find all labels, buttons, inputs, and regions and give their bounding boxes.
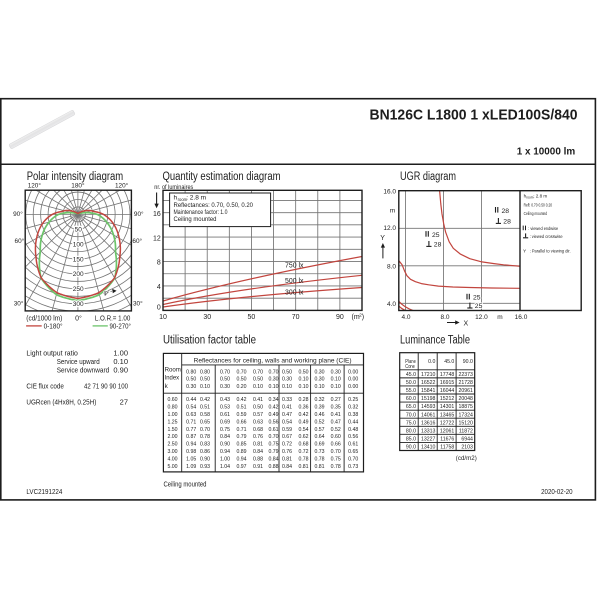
svg-text:Reflectances for ceiling, wall: Reflectances for ceiling, walls and work… [194,357,352,364]
svg-text:70: 70 [292,314,300,321]
svg-text:0.63: 0.63 [253,419,263,425]
svg-text:0.70: 0.70 [331,449,341,455]
svg-text:90.0: 90.0 [463,359,473,365]
svg-text:0.66: 0.66 [236,419,246,425]
svg-text:0.48: 0.48 [348,427,358,433]
svg-text:0.72: 0.72 [298,449,308,455]
svg-text:0.63: 0.63 [186,412,196,418]
svg-text:0.73: 0.73 [314,449,324,455]
svg-text:0.66: 0.66 [331,442,341,448]
svg-text:0°: 0° [75,314,82,322]
svg-text:Room: Room [165,367,181,374]
svg-text:L.O.R.= 1.00: L.O.R.= 1.00 [95,315,131,322]
svg-text:15212: 15212 [440,396,455,402]
svg-text:300 lx: 300 lx [285,289,304,296]
svg-text:2.00: 2.00 [167,434,177,440]
svg-text:0.10: 0.10 [314,384,324,390]
svg-text:Index: Index [165,375,180,382]
svg-text:0.79: 0.79 [236,434,246,440]
svg-text:16044: 16044 [440,388,455,394]
svg-text:0.44: 0.44 [348,419,358,425]
svg-text:0.54: 0.54 [298,427,308,433]
svg-text:25: 25 [473,295,481,302]
svg-text:11676: 11676 [440,436,454,442]
svg-text:0.91: 0.91 [253,464,263,470]
svg-text:0.30: 0.30 [282,377,292,383]
svg-text:11872: 11872 [459,428,473,434]
svg-text:0.20: 0.20 [236,384,246,390]
svg-text:17210: 17210 [421,372,436,378]
svg-text:120°: 120° [115,182,129,190]
svg-text:12722: 12722 [440,420,455,426]
svg-text:0.42: 0.42 [268,405,278,411]
svg-text:0.69: 0.69 [220,419,230,425]
svg-text:0.54: 0.54 [186,405,196,411]
svg-text:15198: 15198 [421,396,436,402]
svg-text:0.84: 0.84 [220,434,230,440]
svg-text:1.00: 1.00 [167,412,177,418]
svg-text:0.35: 0.35 [331,405,341,411]
svg-text:0.41: 0.41 [253,397,263,403]
svg-text:0.87: 0.87 [186,434,196,440]
svg-text:CIE flux code: CIE flux code [26,382,64,391]
svg-text:50.0: 50.0 [406,380,416,386]
svg-text:0.60: 0.60 [167,397,177,403]
svg-text:0.47: 0.47 [331,419,341,425]
svg-text:18875: 18875 [458,404,473,410]
svg-text:UGRcen (4Hx8H, 0.25H): UGRcen (4Hx8H, 0.25H) [26,398,96,407]
svg-text:1 x 10000 lm: 1 x 10000 lm [517,146,576,158]
svg-text:0.71: 0.71 [236,427,246,433]
svg-text:Ceiling mounted: Ceiling mounted [174,216,217,223]
svg-text:3.00: 3.00 [167,449,177,455]
svg-text:0.84: 0.84 [268,456,278,462]
svg-text:0.42: 0.42 [236,397,246,403]
svg-text:0: 0 [157,304,161,311]
svg-text:55.0: 55.0 [406,388,416,394]
svg-text:Y: Y [380,235,385,242]
svg-text:0.78: 0.78 [200,434,210,440]
svg-text:0.42: 0.42 [298,412,308,418]
svg-text:0.84: 0.84 [253,449,263,455]
svg-text:0.70: 0.70 [268,434,278,440]
svg-text:0.62: 0.62 [298,434,308,440]
svg-text:0.75: 0.75 [220,427,230,433]
svg-text:0.54: 0.54 [282,419,292,425]
svg-text:: viewed crosswise: : viewed crosswise [530,234,563,239]
svg-text:90-270°: 90-270° [110,323,132,331]
svg-text:0.47: 0.47 [282,412,292,418]
svg-text:4.00: 4.00 [167,456,177,462]
svg-text:12061: 12061 [440,428,455,434]
svg-text:65.0: 65.0 [406,404,416,410]
svg-text:80.0: 80.0 [406,428,416,434]
svg-text:15120: 15120 [458,420,473,426]
svg-text:0.50: 0.50 [253,405,263,411]
svg-text:13313: 13313 [421,428,436,434]
svg-text:0.10: 0.10 [200,384,210,390]
svg-text:0.30: 0.30 [331,369,341,375]
svg-text:5.00: 5.00 [167,464,177,470]
svg-text:15841: 15841 [421,388,436,394]
svg-text:Utilisation factor table: Utilisation factor table [163,335,256,347]
svg-text:14593: 14593 [421,404,436,410]
svg-text:0.10: 0.10 [298,384,308,390]
svg-text:1.04: 1.04 [220,464,230,470]
svg-text:0.90: 0.90 [113,365,128,374]
svg-text:13410: 13410 [421,445,436,451]
svg-text:0.78: 0.78 [298,456,308,462]
svg-text:0.39: 0.39 [314,405,324,411]
svg-text:0.32: 0.32 [348,405,358,411]
svg-text:0.34: 0.34 [268,397,278,403]
svg-text:0.61: 0.61 [348,442,358,448]
svg-text:0.50: 0.50 [220,377,230,383]
svg-text:0.10: 0.10 [282,384,292,390]
svg-text:0.79: 0.79 [268,449,278,455]
svg-text:0.58: 0.58 [200,412,210,418]
svg-text:Luminance Table: Luminance Table [400,335,470,347]
svg-text:Quantity estimation diagram: Quantity estimation diagram [163,171,281,183]
svg-text:750 lx: 750 lx [285,263,304,270]
svg-text:0.78: 0.78 [331,464,341,470]
svg-text:Reflectances: 0.70, 0.50, 0.20: Reflectances: 0.70, 0.50, 0.20 [174,202,254,209]
svg-text:0.65: 0.65 [200,419,210,425]
svg-text:8.0: 8.0 [440,314,449,321]
svg-text:Maintenance factor: 1.0: Maintenance factor: 1.0 [174,209,228,216]
svg-text:0.59: 0.59 [282,427,292,433]
svg-text:0.84: 0.84 [282,464,292,470]
svg-text:0.51: 0.51 [200,405,210,411]
svg-text:30°: 30° [14,299,24,307]
svg-text:1.05: 1.05 [186,456,196,462]
svg-text:200: 200 [73,271,84,278]
svg-text:0.75: 0.75 [268,442,278,448]
svg-text:0.10: 0.10 [253,384,263,390]
svg-text:0.98: 0.98 [186,449,196,455]
svg-text:70.0: 70.0 [406,412,416,418]
svg-text:90: 90 [336,314,344,321]
svg-text:25: 25 [475,303,483,310]
svg-text:4: 4 [157,284,161,291]
svg-text:0.50: 0.50 [253,377,263,383]
svg-text:14301: 14301 [440,404,455,410]
svg-text:0.27: 0.27 [331,397,341,403]
svg-text:0.83: 0.83 [200,442,210,448]
svg-text:0.53: 0.53 [220,405,230,411]
svg-text:50: 50 [248,314,256,321]
svg-text:250: 250 [73,286,84,293]
svg-text:0.70: 0.70 [200,427,210,433]
svg-text:0.41: 0.41 [282,405,292,411]
svg-text:0.43: 0.43 [220,397,230,403]
svg-text:0.28: 0.28 [298,397,308,403]
svg-text:11758: 11758 [440,445,454,451]
svg-text:4.0: 4.0 [387,301,396,308]
svg-text:16.0: 16.0 [383,188,396,195]
svg-text:500 lx: 500 lx [285,278,304,285]
svg-text:m: m [390,208,395,215]
svg-text:0.68: 0.68 [253,427,263,433]
svg-text:0.30: 0.30 [220,384,230,390]
svg-text:0.70: 0.70 [268,369,278,375]
svg-text:: 2.8 m: : 2.8 m [533,194,547,199]
svg-text:0.50: 0.50 [282,369,292,375]
svg-text:0.94: 0.94 [236,456,246,462]
svg-text:0.10: 0.10 [298,377,308,383]
svg-text:12: 12 [153,235,161,242]
svg-text:2020-02-20: 2020-02-20 [541,489,573,496]
svg-text:0.89: 0.89 [236,449,246,455]
svg-text:28: 28 [502,208,510,215]
svg-text:20048: 20048 [458,396,473,402]
svg-text:0.97: 0.97 [236,464,246,470]
svg-text:0.80: 0.80 [186,369,196,375]
svg-text:0.64: 0.64 [314,434,324,440]
svg-text:0.00: 0.00 [348,377,358,383]
svg-text:25: 25 [432,232,440,239]
svg-text:0.52: 0.52 [314,419,324,425]
svg-text:22373: 22373 [458,372,473,378]
svg-text:0.59: 0.59 [236,412,246,418]
svg-text:17324: 17324 [458,412,473,418]
svg-text:100: 100 [73,241,84,248]
svg-text:X: X [464,320,469,327]
svg-text:90°: 90° [13,210,23,218]
svg-text:0.70: 0.70 [348,456,358,462]
svg-text:12.0: 12.0 [475,314,488,321]
svg-text:45.0: 45.0 [444,359,454,365]
svg-text:42 71 90 90 100: 42 71 90 90 100 [84,382,128,391]
svg-text:0.93: 0.93 [200,464,210,470]
svg-text:20961: 20961 [458,388,473,394]
svg-text:0.75: 0.75 [331,456,341,462]
svg-text:0.88: 0.88 [253,456,263,462]
svg-text:0.44: 0.44 [186,397,196,403]
svg-text:0.81: 0.81 [314,464,324,470]
svg-text:0.56: 0.56 [348,434,358,440]
svg-text:0.41: 0.41 [331,412,341,418]
svg-text:0.88: 0.88 [268,464,278,470]
svg-text:Ceiling mounted: Ceiling mounted [164,482,207,489]
svg-text:120°: 120° [28,182,42,190]
svg-text:0.70: 0.70 [220,369,230,375]
svg-text:0.00: 0.00 [348,369,358,375]
svg-text:4.0: 4.0 [401,314,410,321]
svg-text:0.68: 0.68 [298,442,308,448]
svg-text:30°: 30° [133,299,143,307]
svg-text:0.71: 0.71 [186,419,196,425]
svg-text:: viewed endwise: : viewed endwise [528,226,558,231]
svg-text:21728: 21728 [458,380,473,386]
svg-text:UGR diagram: UGR diagram [400,171,456,183]
svg-text:12.0: 12.0 [383,225,396,232]
svg-text:0.67: 0.67 [282,434,292,440]
svg-text:0.90: 0.90 [200,456,210,462]
svg-text:0.57: 0.57 [253,412,263,418]
svg-text:Ceiling mounted: Ceiling mounted [524,211,548,216]
svg-text:0.10: 0.10 [268,384,278,390]
svg-text:0.81: 0.81 [298,464,308,470]
svg-text:0.65: 0.65 [348,449,358,455]
svg-text:6944: 6944 [461,436,473,442]
svg-text:0.60: 0.60 [331,434,341,440]
svg-text:60°: 60° [15,237,25,245]
svg-text:(cd/1000 lm): (cd/1000 lm) [26,315,62,322]
svg-text:Service downward: Service downward [57,365,109,374]
svg-text:50: 50 [75,227,83,234]
svg-text:0.61: 0.61 [220,412,230,418]
svg-text:0.77: 0.77 [186,427,196,433]
svg-text:0.80: 0.80 [200,369,210,375]
svg-text:16: 16 [153,211,161,218]
svg-text:0.69: 0.69 [314,442,324,448]
svg-text:0.33: 0.33 [282,397,292,403]
svg-text:0.30: 0.30 [268,377,278,383]
svg-text:90.0: 90.0 [406,445,416,451]
svg-text:0.50: 0.50 [298,369,308,375]
svg-text:16522: 16522 [421,380,436,386]
svg-text:1.50: 1.50 [167,427,177,433]
svg-text:1.25: 1.25 [167,419,177,425]
svg-text:0.81: 0.81 [253,442,263,448]
svg-text:0.51: 0.51 [236,405,246,411]
svg-text:Refl: 0.70 0.50 0.20: Refl: 0.70 0.50 0.20 [524,203,553,208]
svg-text:0.00: 0.00 [348,384,358,390]
svg-text:1.00: 1.00 [220,456,230,462]
svg-text:150: 150 [73,256,84,263]
svg-text:: Parallel to viewing dir.: : Parallel to viewing dir. [530,249,571,254]
svg-text:16915: 16915 [440,380,455,386]
svg-text:60.0: 60.0 [406,396,416,402]
svg-text:0.25: 0.25 [348,397,358,403]
svg-text:75.0: 75.0 [406,420,416,426]
svg-text:0.85: 0.85 [236,442,246,448]
svg-text:m: m [497,314,502,321]
svg-text:0.46: 0.46 [314,412,324,418]
svg-text:0.80: 0.80 [167,405,177,411]
svg-text:85.0: 85.0 [406,436,416,442]
svg-text:0.61: 0.61 [268,427,278,433]
svg-text:13465: 13465 [440,412,455,418]
svg-text:0.78: 0.78 [314,456,324,462]
svg-text:0.10: 0.10 [331,377,341,383]
svg-text:8.0: 8.0 [387,263,396,270]
svg-text:0.30: 0.30 [314,369,324,375]
svg-text:0.72: 0.72 [282,442,292,448]
svg-text:0.81: 0.81 [282,456,292,462]
svg-text:(cd/m2): (cd/m2) [456,455,477,462]
svg-text:1.09: 1.09 [186,464,196,470]
svg-text:0.30: 0.30 [314,377,324,383]
svg-text:0.90: 0.90 [220,442,230,448]
svg-text:60°: 60° [132,237,142,245]
svg-text:0.52: 0.52 [331,427,341,433]
svg-text:: 2.8 m: : 2.8 m [186,195,206,202]
svg-text:45.0: 45.0 [406,372,416,378]
svg-text:0.70: 0.70 [253,369,263,375]
svg-text:0.32: 0.32 [314,397,324,403]
svg-text:27: 27 [120,398,128,407]
svg-text:28: 28 [434,242,442,249]
svg-text:0.49: 0.49 [268,412,278,418]
svg-text:13616: 13616 [421,420,436,426]
svg-text:0.73: 0.73 [348,464,358,470]
svg-text:0.50: 0.50 [236,377,246,383]
svg-text:0.50: 0.50 [200,377,210,383]
svg-text:0.94: 0.94 [220,449,230,455]
svg-text:Cone: Cone [405,364,415,370]
svg-text:8: 8 [157,260,161,267]
svg-text:0.70: 0.70 [236,369,246,375]
svg-text:0.94: 0.94 [186,442,196,448]
svg-text:13227: 13227 [421,436,436,442]
svg-text:0.10: 0.10 [331,384,341,390]
svg-text:0-180°: 0-180° [44,323,63,331]
svg-text:28: 28 [503,219,511,226]
svg-text:90°: 90° [134,210,144,218]
svg-text:2103: 2103 [461,445,473,451]
svg-text:0.38: 0.38 [348,412,358,418]
svg-text:0.0: 0.0 [428,359,435,365]
svg-text:0.76: 0.76 [253,434,263,440]
svg-text:LVC2191224: LVC2191224 [26,489,62,496]
svg-text:): ) [362,314,364,321]
svg-text:10: 10 [159,314,167,321]
svg-text:300: 300 [73,301,84,308]
svg-text:BN126C L1800 1 xLED100S/840: BN126C L1800 1 xLED100S/840 [370,107,578,124]
svg-text:Polar intensity diagram: Polar intensity diagram [27,171,124,183]
svg-text:0.36: 0.36 [298,405,308,411]
svg-text:0.76: 0.76 [282,449,292,455]
svg-text:0.30: 0.30 [186,384,196,390]
svg-text:2.50: 2.50 [167,442,177,448]
svg-text:0.42: 0.42 [200,397,210,403]
svg-text:0.49: 0.49 [298,419,308,425]
svg-text:17748: 17748 [440,372,455,378]
svg-text:0.57: 0.57 [314,427,324,433]
svg-text:14061: 14061 [421,412,436,418]
svg-text:0.56: 0.56 [268,419,278,425]
svg-text:0.50: 0.50 [186,377,196,383]
svg-text:180°: 180° [71,182,85,190]
svg-text:16.0: 16.0 [515,314,528,321]
svg-text:0.86: 0.86 [200,449,210,455]
svg-text:30: 30 [203,314,211,321]
